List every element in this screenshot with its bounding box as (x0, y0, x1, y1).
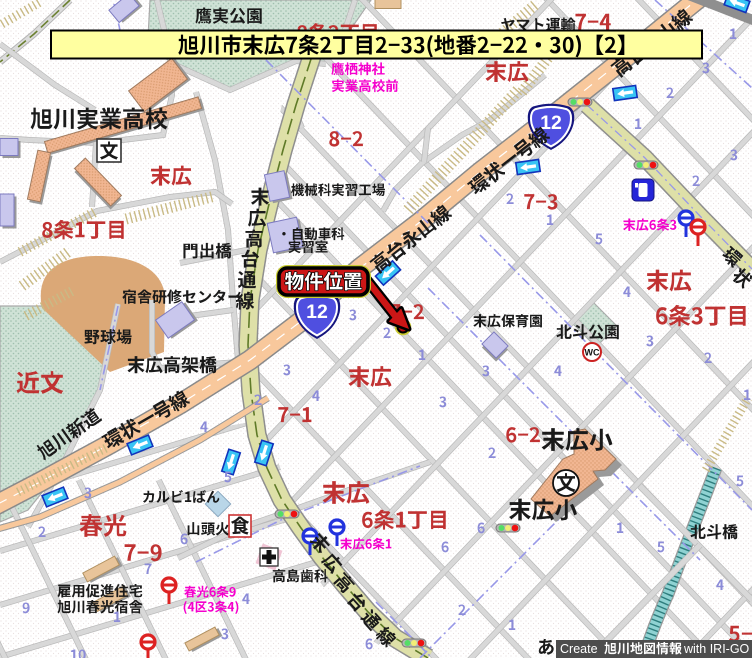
svg-text:WC: WC (585, 348, 600, 358)
svg-text:12: 12 (306, 301, 328, 323)
svg-text:with IRI-GO: with IRI-GO (683, 642, 750, 656)
svg-text:Create: Create (560, 642, 598, 656)
